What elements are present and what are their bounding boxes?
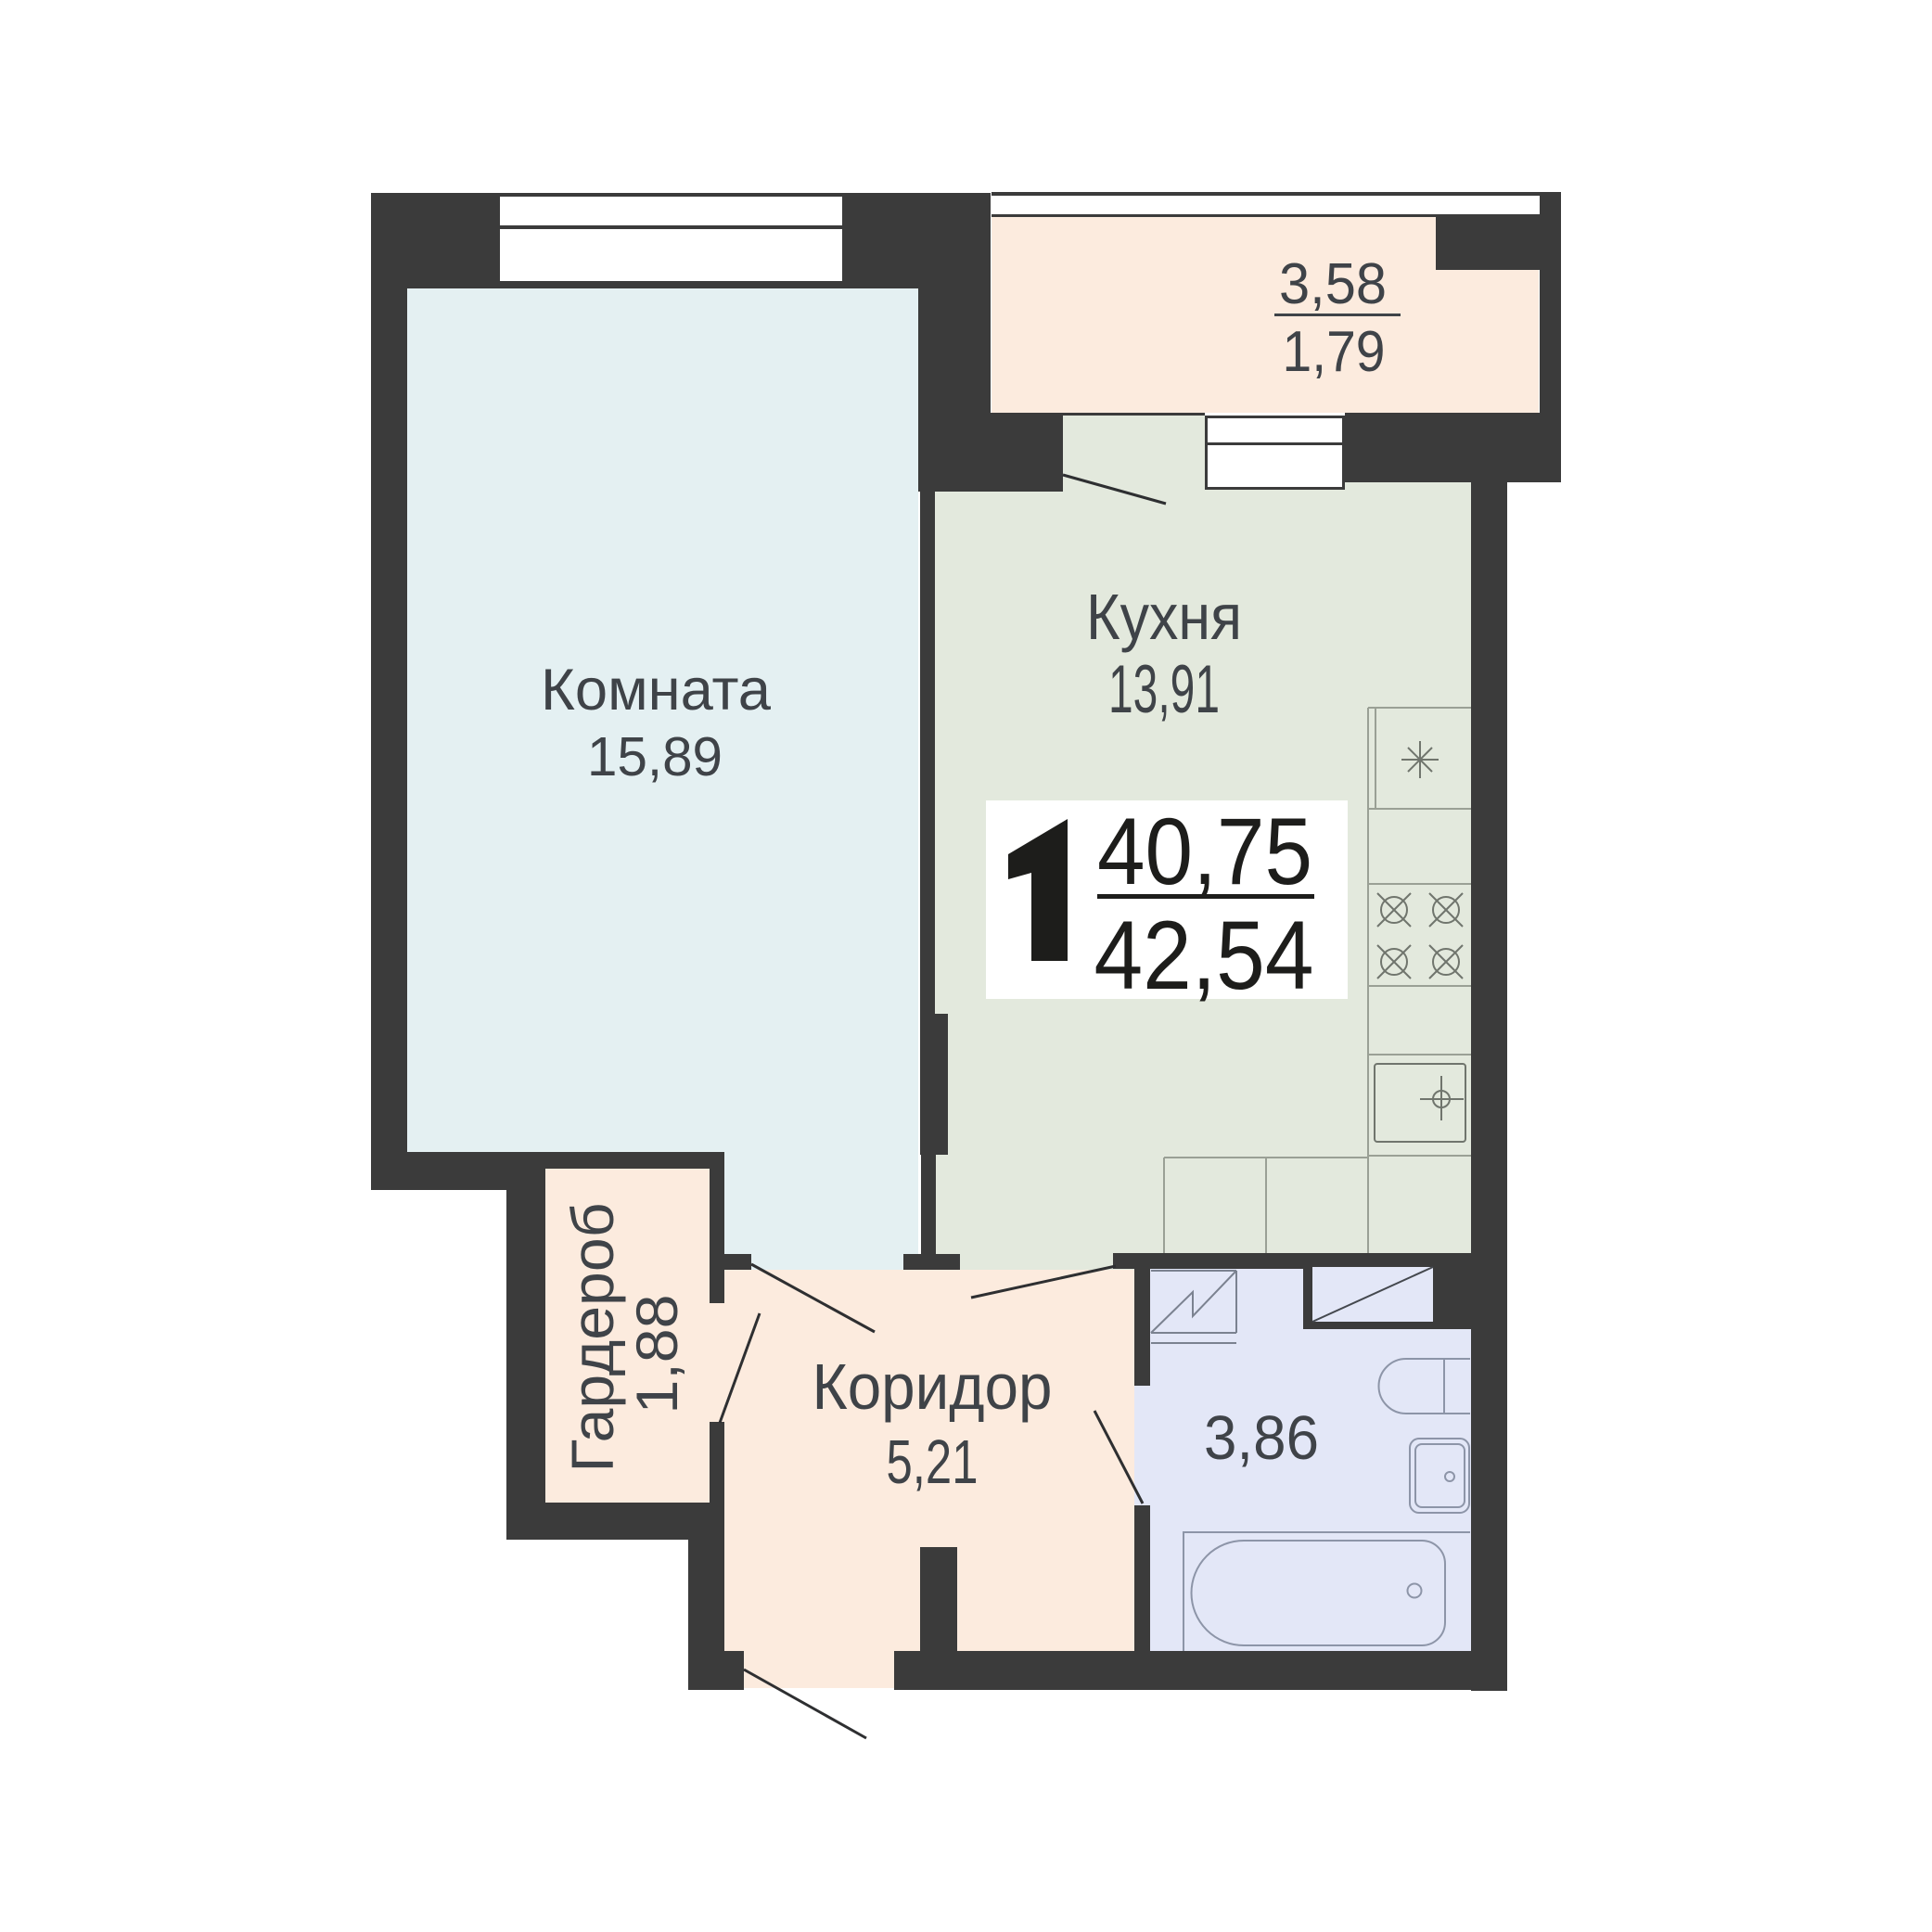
svg-text:5,21: 5,21: [887, 1427, 979, 1497]
svg-text:Гардероб: Гардероб: [559, 1203, 626, 1473]
svg-text:1,79: 1,79: [1283, 320, 1386, 384]
svg-text:1,88: 1,88: [625, 1295, 690, 1414]
svg-text:3,58: 3,58: [1279, 252, 1387, 316]
svg-text:42,54: 42,54: [1094, 902, 1314, 1010]
svg-text:13,91: 13,91: [1108, 652, 1220, 727]
svg-text:15,89: 15,89: [587, 726, 723, 787]
svg-text:Комната: Комната: [541, 658, 772, 723]
svg-text:Кухня: Кухня: [1086, 581, 1242, 653]
svg-text:Коридор: Коридор: [812, 1350, 1053, 1423]
svg-text:3,86: 3,86: [1204, 1403, 1319, 1473]
svg-text:40,75: 40,75: [1097, 799, 1312, 904]
